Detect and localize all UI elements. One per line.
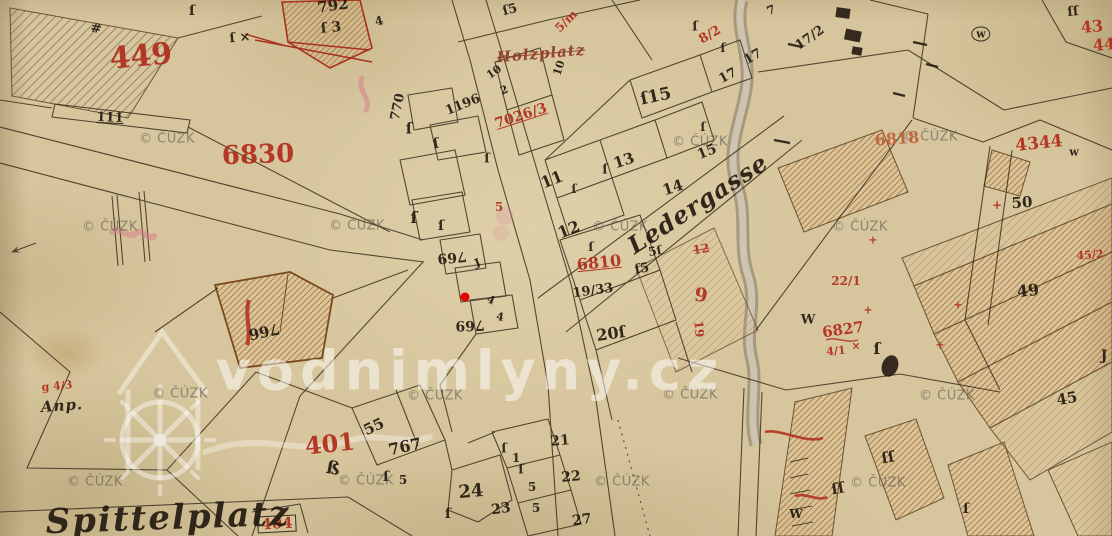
site-watermark-text: vodnimlyny.cz [216, 340, 725, 403]
location-marker-dot[interactable] [461, 293, 470, 302]
map-canvas [0, 0, 1112, 536]
red-hatched-buildings [215, 0, 372, 368]
map-viewport[interactable]: © ČÚZK© ČÚZK© ČÚZK© ČÚZK© ČÚZK© ČÚZK© ČÚ… [0, 0, 1112, 536]
pink-smudges [112, 78, 514, 241]
